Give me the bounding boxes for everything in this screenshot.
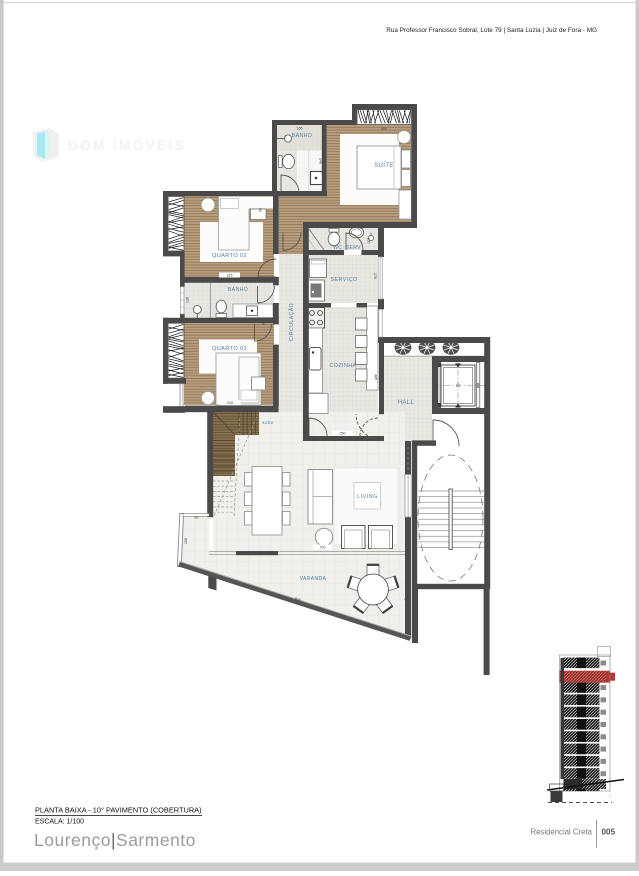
svg-text:700: 700 xyxy=(320,546,326,550)
svg-text:QUARTO 02: QUARTO 02 xyxy=(212,253,247,259)
svg-text:315: 315 xyxy=(227,401,233,405)
svg-text:005: 005 xyxy=(602,828,616,837)
svg-text:BANHO: BANHO xyxy=(228,287,248,293)
svg-text:90: 90 xyxy=(258,208,262,212)
svg-text:Rua Professor Francisco Sobral: Rua Professor Francisco Sobral, Lote 79 … xyxy=(386,27,597,34)
svg-text:165: 165 xyxy=(297,127,303,131)
svg-text:COZINHA: COZINHA xyxy=(329,363,356,369)
svg-text:LIVING: LIVING xyxy=(357,494,378,500)
svg-text:100: 100 xyxy=(367,238,371,244)
svg-text:Lourenço|Sarmento: Lourenço|Sarmento xyxy=(34,830,196,850)
svg-text:150: 150 xyxy=(184,538,188,544)
svg-text:QUARTO 03: QUARTO 03 xyxy=(212,346,247,352)
svg-text:HALL: HALL xyxy=(398,400,415,406)
svg-text:Residencial Creta: Residencial Creta xyxy=(530,828,592,837)
svg-text:90: 90 xyxy=(261,321,265,325)
svg-text:200: 200 xyxy=(358,226,364,230)
svg-text:83: 83 xyxy=(195,516,199,520)
svg-text:170: 170 xyxy=(373,273,377,279)
svg-text:130: 130 xyxy=(186,297,190,303)
svg-text:400: 400 xyxy=(381,127,387,131)
svg-text:SERVIÇO: SERVIÇO xyxy=(331,277,358,283)
svg-text:SUÍTE: SUÍTE xyxy=(374,162,394,169)
svg-text:BANHO: BANHO xyxy=(292,133,312,139)
svg-text:DOM IMÓVEIS: DOM IMÓVEIS xyxy=(68,138,186,153)
svg-text:240: 240 xyxy=(319,158,323,164)
svg-text:315: 315 xyxy=(227,274,233,278)
svg-text:CIRCULAÇÃO: CIRCULAÇÃO xyxy=(288,303,295,341)
svg-text:WC. SERV: WC. SERV xyxy=(333,245,361,251)
svg-text:VARANDA: VARANDA xyxy=(300,576,327,582)
svg-text:485: 485 xyxy=(374,374,378,380)
svg-text:sobe: sobe xyxy=(262,420,274,425)
svg-text:PLANTA BAIXA - 10° PAVIMENTO (: PLANTA BAIXA - 10° PAVIMENTO (COBERTURA) xyxy=(35,806,202,815)
svg-text:ESCALA: 1/100: ESCALA: 1/100 xyxy=(35,819,84,826)
svg-text:250: 250 xyxy=(340,432,346,436)
